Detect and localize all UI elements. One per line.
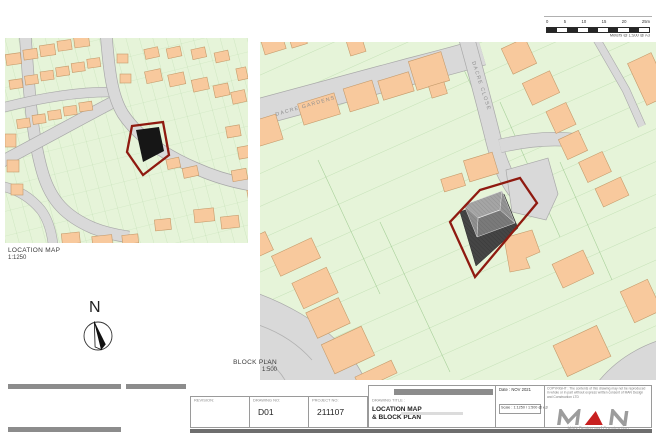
tick-15: 15 bbox=[602, 20, 607, 24]
block-plan: DACRE GARDENS DACRE CLOSE bbox=[260, 42, 656, 380]
scale-bar-ticks: 0 5 10 15 20 25m bbox=[546, 20, 650, 24]
drawing-title-line2: & BLOCK PLAN bbox=[372, 414, 492, 422]
drawing-no-cell: DRAWING NO: D01 bbox=[249, 397, 308, 427]
tick-25: 25m bbox=[642, 20, 650, 24]
copyright-text: COPYRIGHT : The contents of this drawing… bbox=[547, 387, 649, 399]
drawing-no-label: DRAWING NO: bbox=[253, 399, 305, 403]
location-map-title: LOCATION MAP bbox=[8, 247, 60, 255]
contact-redaction bbox=[126, 384, 186, 389]
title-block-cells-left: REVISION: DRAWING NO: D01 PROJECT NO: 21… bbox=[190, 396, 368, 428]
logo-letter-a-red-triangle bbox=[585, 411, 605, 425]
tick-20: 20 bbox=[622, 20, 627, 24]
revision-cell: REVISION: bbox=[191, 397, 249, 427]
client-redaction-faint bbox=[401, 412, 463, 415]
man-logo bbox=[555, 409, 641, 426]
block-plan-scale: 1:500 bbox=[203, 367, 277, 375]
title-block-cells-right: DRAWING TITLE : LOCATION MAP & BLOCK PLA… bbox=[368, 385, 652, 428]
title-block-bottom-bar bbox=[190, 429, 652, 433]
logo-letters bbox=[559, 411, 627, 425]
project-no-label: PROJECT NO: bbox=[312, 399, 364, 403]
tick-0: 0 bbox=[546, 20, 548, 24]
north-label: N bbox=[89, 299, 101, 317]
block-plan-title: BLOCK PLAN bbox=[203, 359, 277, 367]
project-no-value: 211107 bbox=[317, 407, 364, 417]
date-scale-cell: Date : NOV 2021 Scale : 1:1250 / 1:500 @… bbox=[495, 386, 544, 427]
scale-bar: 0 5 10 15 20 25m Meters @ 1:500 @ A3 bbox=[546, 20, 650, 40]
location-map bbox=[5, 38, 248, 243]
drawing-title-cell: DRAWING TITLE : LOCATION MAP & BLOCK PLA… bbox=[369, 386, 495, 427]
date-value: Date : NOV 2021 bbox=[499, 388, 541, 392]
scale-box: Scale : 1:1250 / 1:500 @ A3 bbox=[499, 404, 541, 414]
notes-redaction-bottom bbox=[8, 427, 121, 432]
logo-cell: COPYRIGHT : The contents of this drawing… bbox=[544, 386, 651, 427]
drawing-sheet: 0 5 10 15 20 25m Meters @ 1:500 @ A3 bbox=[0, 0, 656, 437]
scale-value: Scale : 1:1250 / 1:500 @ A3 bbox=[501, 406, 539, 410]
scale-bar-ruler bbox=[546, 27, 650, 33]
client-redaction bbox=[394, 389, 493, 395]
drawing-no-value: D01 bbox=[258, 407, 305, 417]
drawing-title-label: DRAWING TITLE : bbox=[372, 399, 492, 403]
north-arrow bbox=[81, 317, 115, 353]
location-map-scale: 1:1250 bbox=[8, 255, 60, 263]
scale-bar-caption: Meters @ 1:500 @ A3 bbox=[579, 34, 650, 38]
logo-letter-m bbox=[559, 411, 579, 425]
block-plan-caption: BLOCK PLAN 1:500 bbox=[203, 359, 277, 375]
revision-label: REVISION: bbox=[194, 399, 246, 403]
tick-5: 5 bbox=[564, 20, 566, 24]
top-rule bbox=[544, 16, 652, 17]
logo-letter-n bbox=[611, 411, 627, 425]
notes-redaction-top bbox=[8, 384, 121, 389]
location-map-caption: LOCATION MAP 1:1250 bbox=[8, 247, 60, 263]
tick-10: 10 bbox=[582, 20, 587, 24]
project-no-cell: PROJECT NO: 211107 bbox=[308, 397, 367, 427]
compass-needle bbox=[89, 320, 107, 351]
